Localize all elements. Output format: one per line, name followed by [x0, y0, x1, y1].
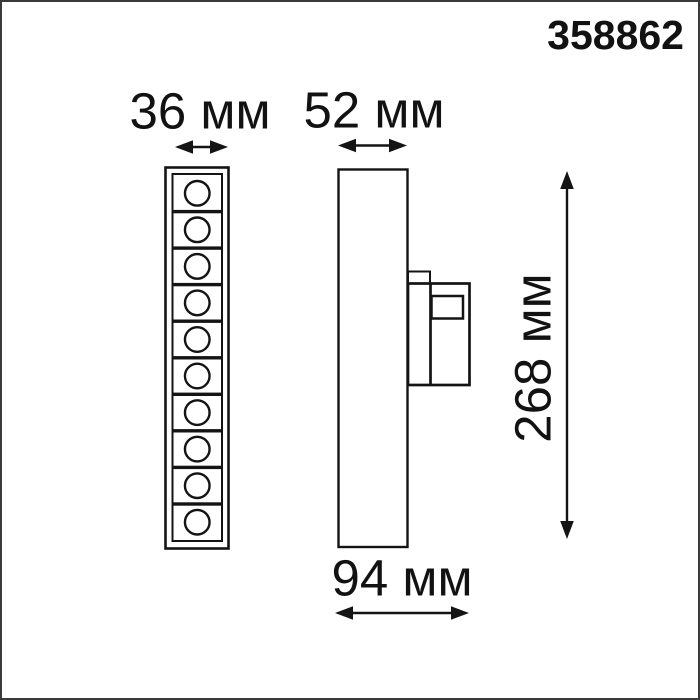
depth-arrow [335, 606, 469, 620]
height-arrow [560, 171, 574, 539]
led-spot-circle [185, 510, 210, 535]
led-cell-separator [173, 393, 223, 396]
led-cell-separator [173, 429, 223, 432]
side-view [339, 170, 470, 548]
led-spot-circle [185, 327, 210, 352]
height-label: 268 мм [508, 273, 559, 442]
led-spot-circle [185, 181, 210, 206]
led-spot-circle [185, 254, 210, 279]
track-adapter-body [408, 284, 470, 386]
front-view-led-cells [173, 181, 223, 535]
front-width-arrow [175, 140, 228, 154]
led-cell-separator [173, 283, 223, 286]
led-cell-separator [173, 502, 223, 505]
led-spot-circle [185, 473, 210, 498]
side-width-label: 52 мм [303, 85, 444, 136]
track-adapter-notch [432, 296, 464, 319]
side-width-arrow [338, 139, 407, 153]
front-width-label: 36 мм [129, 86, 270, 137]
led-spot-circle [185, 437, 210, 462]
led-spot-circle [185, 364, 210, 389]
led-cell-separator [173, 246, 223, 249]
track-adapter-tab [408, 272, 430, 284]
front-view [166, 168, 229, 549]
led-spot-circle [185, 400, 210, 425]
depth-label: 94 мм [331, 553, 472, 604]
product-number: 358862 [547, 15, 684, 56]
technical-drawing-canvas: 358862 36 мм 52 мм 268 мм 94 мм [0, 0, 700, 700]
led-cell-separator [173, 320, 223, 323]
side-view-body [339, 170, 408, 548]
led-cell-separator [173, 466, 223, 469]
led-spot-circle [185, 291, 210, 316]
led-cell-separator [173, 210, 223, 213]
led-cell-separator [173, 356, 223, 359]
led-spot-circle [185, 218, 210, 243]
